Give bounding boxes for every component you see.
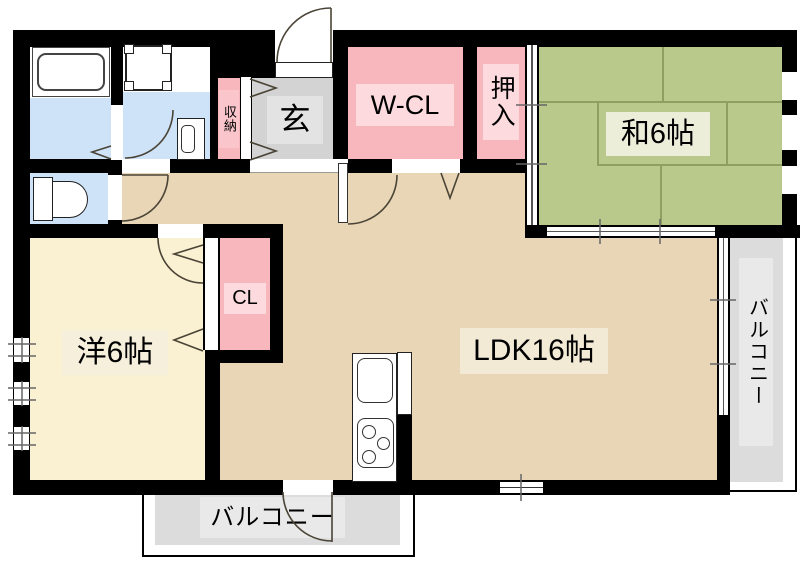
wall: [543, 480, 730, 495]
wall: [205, 350, 220, 495]
room-label-cl: CL: [224, 283, 266, 314]
wall: [717, 415, 730, 495]
stove-burner-icon: [362, 450, 376, 464]
wall: [13, 159, 122, 173]
door-opening-balcony-bottom: [283, 480, 333, 495]
washer-pan-corner: [162, 81, 172, 91]
vanity-bowl-icon: [181, 125, 195, 153]
kitchen-counter-gap: [397, 352, 412, 415]
wall: [13, 480, 283, 495]
room-label-shuno: 収納: [219, 90, 239, 148]
wall: [525, 225, 547, 238]
wall-kitchen-partition: [397, 415, 412, 480]
window-ldk-bottom-track: [500, 487, 543, 489]
washer-pan-corner: [124, 44, 134, 54]
room-bath-wetarea: [30, 98, 111, 160]
wall: [348, 159, 392, 173]
room-label-washitsu: 和6帖: [606, 112, 710, 156]
room-label-balcony-bottom: バルコニー: [200, 497, 345, 538]
stove-burner-icon: [377, 437, 390, 450]
tatami-line: [597, 101, 599, 166]
stove-burner-icon: [362, 425, 376, 439]
door-opening-youshitsu: [158, 224, 203, 238]
tatami-line: [662, 47, 664, 103]
wall: [13, 224, 158, 238]
wall: [270, 224, 283, 363]
window-youshitsu-left: [13, 337, 30, 363]
balcony-right-outline: [730, 490, 797, 492]
wall: [460, 159, 525, 173]
tatami-line: [660, 164, 662, 225]
floor-plan: 和6帖 洋6帖 LDK16帖 W-CL 押入 玄 収納 CL バルコニー バルコ…: [0, 0, 810, 571]
window-youshitsu-left: [13, 426, 30, 451]
entrance-door-threshold: [275, 62, 333, 78]
door-leaf-corridor: [338, 163, 348, 223]
window-washitsu-right: [782, 115, 797, 150]
room-label-youshitsu: 洋6帖: [62, 330, 168, 375]
fusuma-oshiire-track: [531, 45, 533, 225]
balcony-right-outline: [795, 225, 797, 492]
wall: [347, 30, 797, 47]
tatami-line: [726, 101, 728, 166]
window-youshitsu-left: [13, 381, 30, 406]
tatami-line: [538, 101, 782, 103]
wall: [215, 30, 275, 78]
door-opening-toilet: [108, 175, 122, 220]
door-opening-bath: [111, 105, 123, 160]
window-washitsu-right: [782, 166, 797, 194]
sliding-door-washitsu-track: [547, 231, 715, 233]
door-opening-washroom: [122, 159, 170, 173]
genkan-step: [250, 159, 348, 173]
tatami-line: [597, 164, 782, 166]
toilet-tank-icon: [33, 177, 53, 221]
room-label-ldk: LDK16帖: [460, 328, 608, 374]
window-washitsu-right: [782, 72, 797, 100]
bathtub-icon: [37, 53, 105, 91]
toilet-bowl-icon: [52, 181, 88, 218]
wall: [463, 45, 477, 159]
wall: [333, 480, 500, 495]
wall: [715, 225, 800, 238]
wall: [210, 45, 218, 160]
room-label-genkan: 玄: [267, 96, 323, 144]
room-label-wcl: W-CL: [356, 84, 454, 126]
door-opening-wcl: [392, 159, 460, 173]
entrance-door-arc: [277, 8, 331, 62]
cl-folding-door: [203, 238, 220, 350]
wall: [170, 159, 250, 173]
kitchen-sink-icon: [357, 358, 393, 403]
room-label-balcony-right: バルコニー: [739, 258, 773, 446]
shoe-cabinet-door: [240, 77, 252, 159]
washer-pan-corner: [162, 44, 172, 54]
wall: [333, 30, 348, 159]
room-label-oshiire: 押入: [483, 64, 519, 140]
washer-pan-corner: [124, 81, 134, 91]
sliding-door-balcony-right-track: [723, 238, 725, 415]
